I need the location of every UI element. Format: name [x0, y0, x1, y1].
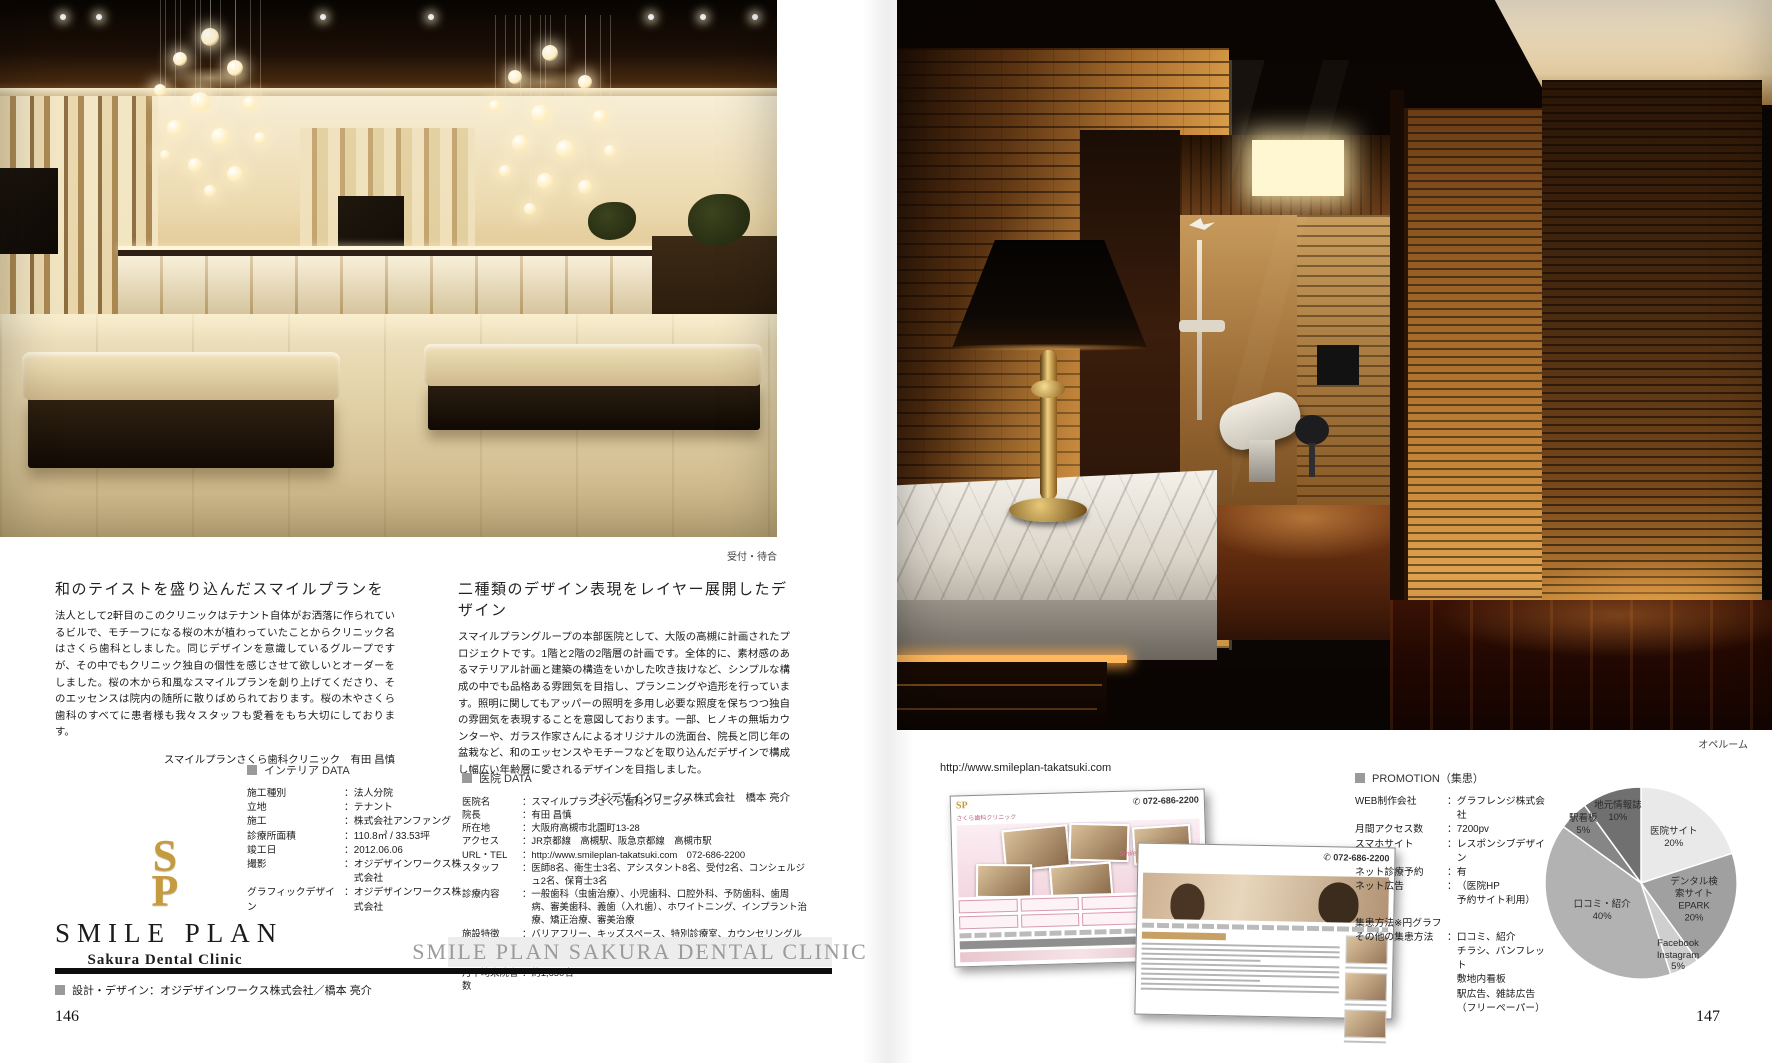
colon: ：: [344, 844, 354, 858]
data-value: （医院HP 予約サイト利用）: [1457, 880, 1550, 908]
pendant-wire: [530, 15, 531, 203]
glass-reflection: [1232, 60, 1402, 640]
data-label: その他の集患方法: [1355, 931, 1447, 1016]
downlight: [428, 14, 434, 20]
colon: ：: [344, 801, 354, 815]
light-orb: [167, 120, 183, 136]
data-value: 110.8㎡ / 33.53坪: [354, 830, 465, 844]
colon: ：: [1447, 795, 1457, 823]
data-value: 大阪府高槻市北園町13-28: [531, 821, 807, 834]
floor-glow: [0, 314, 777, 342]
colon: ：: [344, 886, 354, 914]
design-credit: 設計・デザイン：オジデザインワークス株式会社／橋本 亮介: [55, 982, 372, 998]
wall-tv: [0, 168, 58, 254]
data-row: 診療所面積：110.8㎡ / 33.53坪: [247, 830, 465, 844]
light-orb: [160, 150, 170, 160]
data-label: 施工種別: [247, 787, 344, 801]
data-value: レスポンシブデザイン: [1457, 838, 1550, 866]
light-orb: [499, 165, 511, 177]
data-row: アクセス：JR京都線 高槻駅、阪急京都線 高槻市駅: [462, 834, 807, 847]
downlight: [60, 14, 66, 20]
data-row: ネット診療予約：有: [1355, 866, 1550, 880]
site-menu-button: [1082, 895, 1141, 910]
data-row: グラフィックデザイン：オジデザインワークス株式会社: [247, 886, 465, 914]
colon: ：: [344, 787, 354, 801]
drawer-seam: [897, 708, 1097, 710]
wood-floor: [1390, 600, 1772, 730]
table-lamp-stem: [1040, 350, 1057, 500]
downlight: [752, 14, 758, 20]
light-orb: [204, 185, 216, 197]
light-orb: [556, 140, 574, 158]
divider-rule: [55, 968, 832, 974]
website-url: http://www.smileplan-takatsuki.com: [940, 762, 1111, 774]
colon: ：: [1447, 838, 1457, 866]
data-label: 所在地: [462, 821, 522, 834]
person-silhouette: [1318, 882, 1359, 923]
data-label: スタッフ: [462, 861, 522, 887]
data-value: http://www.smileplan-takatsuki.com 072-6…: [531, 848, 807, 861]
data-label: ネット診療予約: [1355, 866, 1447, 880]
colon: ：: [522, 834, 531, 847]
data-label: アクセス: [462, 834, 522, 847]
colon: ：: [522, 887, 531, 926]
square-bullet-icon: [1355, 773, 1365, 783]
operating-room-photo: [897, 0, 1772, 730]
data-value: グラフレンジ株式会社: [1457, 795, 1550, 823]
bench-cushion: [424, 344, 762, 386]
interior-data-rows: 施工種別：法人分院立地：テナント施工：株式会社アンファング診療所面積：110.8…: [247, 787, 465, 915]
photo-tile: [1049, 862, 1114, 898]
data-value: 一般歯科（虫歯治療）、小児歯科、口腔外科、予防歯科、歯周病、審美歯科、義歯（入れ…: [531, 887, 807, 926]
colon: ：: [522, 848, 531, 861]
patient-source-pie-chart: 医院サイト 20%デンタル検索サイト EPARK 20%Facebook Ins…: [1538, 780, 1744, 986]
colon: ：: [344, 815, 354, 829]
magazine-spread: 受付・待合 オペルーム: [0, 0, 1772, 1063]
colon: ：: [1447, 823, 1457, 837]
article-heading: 二種類のデザイン表現をレイヤー展開したデザイン: [458, 578, 790, 620]
data-label: 診療内容: [462, 887, 522, 926]
light-orb: [190, 92, 210, 112]
data-label: WEB制作会社: [1355, 795, 1447, 823]
data-row: ネット広告：（医院HP 予約サイト利用）: [1355, 880, 1550, 908]
colon: ：: [522, 821, 531, 834]
data-row: 所在地：大阪府高槻市北園町13-28: [462, 821, 807, 834]
data-label: スマホサイト: [1355, 838, 1447, 866]
data-row: 月間アクセス数：7200pv: [1355, 823, 1550, 837]
section-title: インテリア DATA: [247, 762, 465, 778]
light-orb: [537, 173, 553, 189]
page-number-right: 147: [1696, 1008, 1720, 1026]
page-number-left: 146: [55, 1008, 79, 1026]
light-orb: [227, 166, 243, 182]
data-row: URL・TEL：http://www.smileplan-takatsuki.c…: [462, 848, 807, 861]
pie-label: 地元情報誌 10%: [1594, 800, 1642, 824]
data-label: 立地: [247, 801, 344, 815]
photo-tile: [976, 864, 1032, 897]
data-row: 診療内容：一般歯科（虫歯治療）、小児歯科、口腔外科、予防歯科、歯周病、審美歯科、…: [462, 887, 807, 926]
promotion-block: PROMOTION（集患） WEB制作会社：グラフレンジ株式会社月間アクセス数：…: [1355, 770, 1550, 1016]
logo-name: SMILE PLAN: [55, 918, 275, 949]
promotion-note: 集患方法※円グラフ: [1355, 917, 1550, 931]
data-value: 有: [1457, 866, 1550, 880]
colon: ：: [1447, 880, 1457, 908]
pie-label: Facebook Instagram 5%: [1657, 938, 1699, 974]
article-body: 法人として2軒目のこのクリニックはテナント自体がお洒落に作られているビルで、モチ…: [55, 609, 395, 742]
square-bullet-icon: [462, 773, 472, 783]
banner-band: SMILE PLAN SAKURA DENTAL CLINIC: [448, 937, 832, 967]
person-silhouette: [1170, 883, 1205, 923]
pendant-light-cluster: [470, 15, 630, 215]
data-row: 竣工日：2012.06.06: [247, 844, 465, 858]
data-row: WEB制作会社：グラフレンジ株式会社: [1355, 795, 1550, 823]
downlight: [320, 14, 326, 20]
banner-text: SMILE PLAN SAKURA DENTAL CLINIC: [412, 939, 867, 965]
colon: ：: [344, 830, 354, 844]
pie-label: デンタル検索サイト EPARK 20%: [1669, 876, 1719, 924]
article-body: スマイルプラングループの本部医院として、大阪の高槻に計画されたプロジェクトです。…: [458, 630, 790, 780]
site-nav-bar: [1142, 923, 1388, 933]
site-content: [1140, 932, 1388, 1048]
site-menu-button: [1082, 911, 1141, 926]
sp-monogram-logo: SP: [55, 838, 275, 908]
colon: ：: [344, 858, 354, 886]
data-value: 株式会社アンファング: [354, 815, 465, 829]
data-row: 施工種別：法人分院: [247, 787, 465, 801]
data-row: スタッフ：医師8名、衛生士3名、アシスタント8名、受付2名、コンシェルジュ2名、…: [462, 861, 807, 887]
data-row: 院長：有田 昌慎: [462, 808, 807, 821]
data-row: 施工：株式会社アンファング: [247, 815, 465, 829]
data-label: 月間アクセス数: [1355, 823, 1447, 837]
thumbnail-caption: [1344, 1041, 1386, 1044]
colon: ：: [522, 808, 531, 821]
colon: ：: [522, 795, 531, 808]
data-label: ネット広告: [1355, 880, 1447, 908]
light-orb: [211, 128, 229, 146]
ceiling-downlights: [0, 0, 777, 40]
light-orb: [254, 132, 266, 144]
colon: ：: [522, 861, 531, 887]
data-value: 口コミ、紹介 チラシ、パンフレット 敷地内看板 駅広告、雑誌広告 （フリーペーパ…: [1457, 931, 1550, 1016]
pie-label: 医院サイト 20%: [1650, 826, 1698, 850]
site-menu-button: [1020, 897, 1079, 912]
bench-base: [428, 382, 760, 430]
data-row: 立地：テナント: [247, 801, 465, 815]
square-bullet-icon: [247, 765, 257, 775]
site-clinic-name: さくら歯科クリニック: [956, 812, 1016, 823]
photo-caption-right: オペルーム: [1600, 736, 1748, 751]
downlight: [700, 14, 706, 20]
drawers: [897, 662, 1107, 730]
data-value: オジデザインワークス株式会社: [354, 886, 465, 914]
text-line: [1141, 988, 1339, 994]
data-value: 医師8名、衛生士3名、アシスタント8名、受付2名、コンシェルジュ2名、保育士3名: [531, 861, 807, 887]
site-menu-button: [1021, 913, 1080, 928]
data-value: 7200pv: [1457, 823, 1550, 837]
colon: ：: [1447, 866, 1457, 880]
promotion-other-rows: その他の集患方法：口コミ、紹介 チラシ、パンフレット 敷地内看板 駅広告、雑誌広…: [1355, 931, 1550, 1016]
site-text-column: [1140, 932, 1340, 1047]
section-title: PROMOTION（集患）: [1355, 770, 1550, 786]
site-logo: SP: [956, 800, 1016, 812]
marble-counter-front: [897, 600, 1217, 660]
square-bullet-icon: [55, 985, 65, 995]
site-menu-button: [959, 899, 1018, 914]
site-heading-bar: [1142, 932, 1226, 941]
pie-label: 口コミ・紹介 40%: [1574, 899, 1631, 923]
data-row: その他の集患方法：口コミ、紹介 チラシ、パンフレット 敷地内看板 駅広告、雑誌広…: [1355, 931, 1550, 1016]
table-lamp-stem-knob: [1031, 380, 1065, 398]
site-hero-photo: [1142, 873, 1389, 924]
site-phone: ✆ 072-686-2200: [1133, 795, 1199, 808]
reception-counter: [118, 256, 658, 318]
text-line: [1141, 958, 1260, 962]
promotion-rows: WEB制作会社：グラフレンジ株式会社月間アクセス数：7200pvスマホサイト：レ…: [1355, 795, 1550, 909]
data-value: スマイルプランさくら歯科クリニック: [531, 795, 807, 808]
data-value: 法人分院: [354, 787, 465, 801]
site-menu-button: [959, 915, 1018, 930]
article-left: 和のテイストを盛り込んだスマイルプランを 法人として2軒目のこのクリニックはテナ…: [55, 578, 395, 766]
clinic-logo-block: SP SMILE PLAN Sakura Dental Clinic: [55, 838, 275, 969]
light-orb: [593, 110, 607, 124]
light-orb: [243, 96, 257, 110]
downlight: [96, 14, 102, 20]
light-orb: [489, 100, 501, 112]
light-orb: [512, 135, 528, 151]
reception-photo: [0, 0, 777, 537]
data-label: 医院名: [462, 795, 522, 808]
data-label: URL・TEL: [462, 848, 522, 861]
light-orb: [524, 203, 536, 215]
article-heading: 和のテイストを盛り込んだスマイルプランを: [55, 578, 395, 599]
table-lamp-base: [1009, 498, 1087, 522]
photo-caption-left: 受付・待合: [640, 548, 777, 563]
data-value: テナント: [354, 801, 465, 815]
logo-subname: Sakura Dental Clinic: [55, 952, 275, 969]
light-orb: [188, 158, 202, 172]
colon: ：: [1447, 931, 1457, 1016]
downlight: [648, 14, 654, 20]
light-orb: [604, 145, 616, 157]
light-orb: [578, 180, 592, 194]
phone-icon: ✆: [1133, 796, 1141, 806]
data-value: 有田 昌慎: [531, 808, 807, 821]
text-line: [1141, 978, 1260, 982]
drawer-seam: [897, 684, 1102, 686]
data-label: 施工: [247, 815, 344, 829]
phone-icon: ✆: [1323, 852, 1331, 862]
data-row: スマホサイト：レスポンシブデザイン: [1355, 838, 1550, 866]
light-orb: [531, 105, 549, 123]
bench-base: [28, 396, 334, 468]
bench-cushion: [22, 352, 340, 400]
data-value: 2012.06.06: [354, 844, 465, 858]
data-value: オジデザインワークス株式会社: [354, 858, 465, 886]
data-label: 院長: [462, 808, 522, 821]
data-row: 医院名：スマイルプランさくら歯科クリニック: [462, 795, 807, 808]
dental-unit-tray: [1179, 320, 1225, 332]
data-value: JR京都線 高槻駅、阪急京都線 高槻市駅: [531, 834, 807, 847]
section-title: 医院 DATA: [462, 770, 807, 786]
data-row: 撮影：オジデザインワークス株式会社: [247, 858, 465, 886]
interior-data-block: インテリア DATA 施工種別：法人分院立地：テナント施工：株式会社アンファング…: [247, 762, 465, 915]
